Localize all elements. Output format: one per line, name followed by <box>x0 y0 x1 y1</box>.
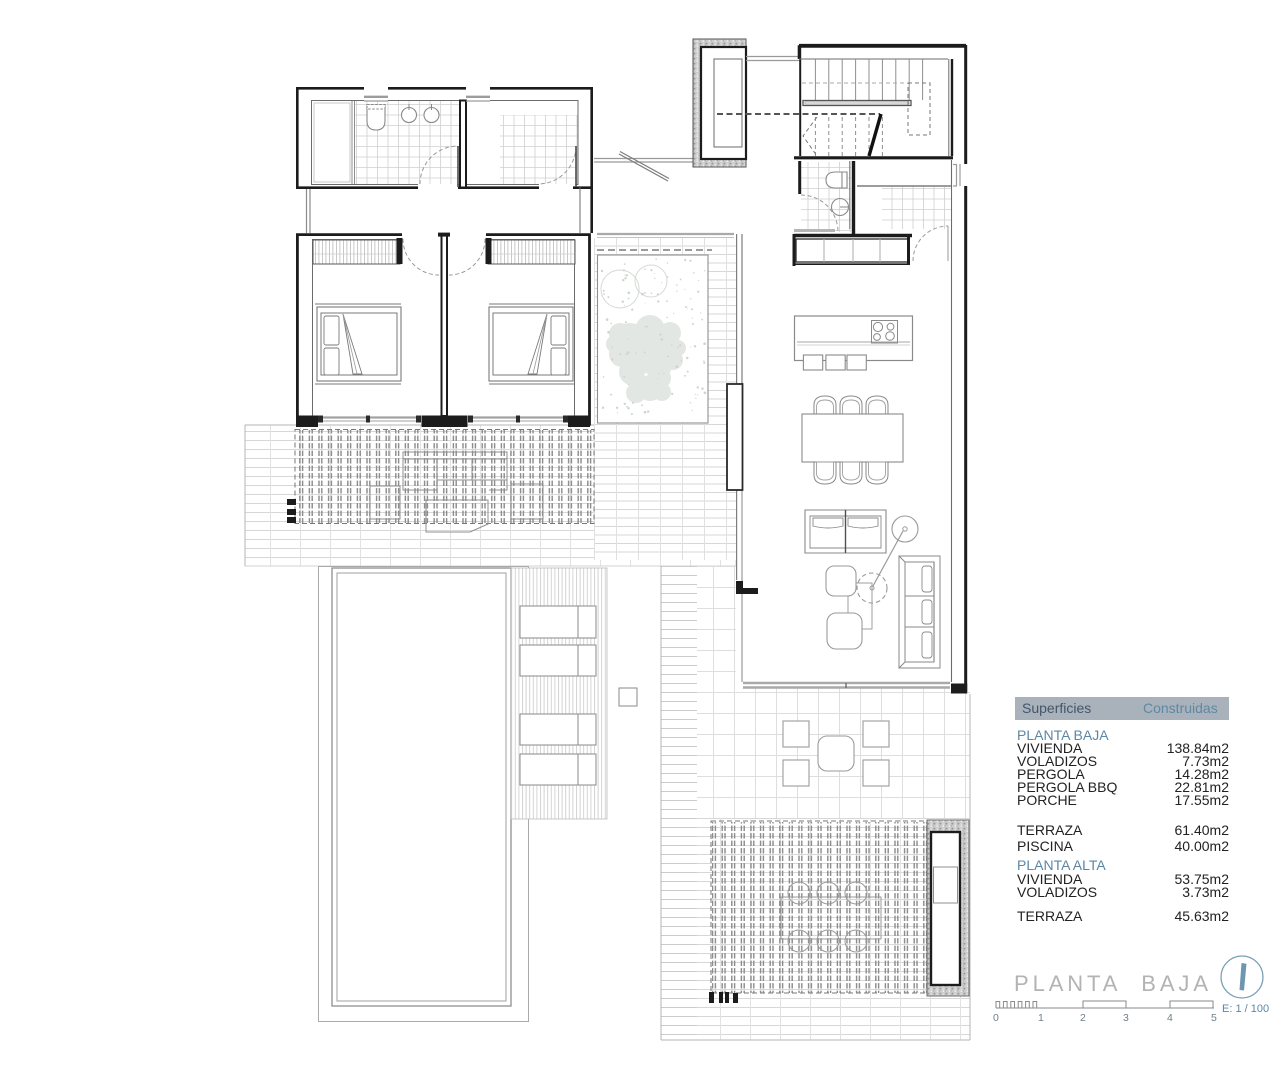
svg-text:1: 1 <box>1038 1012 1044 1024</box>
svg-text:61.40m2: 61.40m2 <box>1175 822 1230 838</box>
svg-text:5: 5 <box>1211 1012 1217 1024</box>
svg-text:E: 1 / 100: E: 1 / 100 <box>1222 1003 1269 1015</box>
svg-text:TERRAZA: TERRAZA <box>1017 908 1083 924</box>
svg-text:TERRAZA: TERRAZA <box>1017 822 1083 838</box>
svg-text:45.63m2: 45.63m2 <box>1175 908 1230 924</box>
svg-text:2: 2 <box>1080 1012 1086 1024</box>
svg-text:3.73m2: 3.73m2 <box>1182 884 1229 900</box>
svg-text:Construidas: Construidas <box>1143 700 1218 716</box>
svg-text:3: 3 <box>1123 1012 1129 1024</box>
svg-text:4: 4 <box>1167 1012 1173 1024</box>
svg-text:40.00m2: 40.00m2 <box>1175 838 1230 854</box>
svg-text:VOLADIZOS: VOLADIZOS <box>1017 884 1097 900</box>
svg-text:17.55m2: 17.55m2 <box>1175 792 1230 808</box>
svg-text:PORCHE: PORCHE <box>1017 792 1077 808</box>
svg-text:0: 0 <box>993 1012 999 1024</box>
svg-text:Superficies: Superficies <box>1022 700 1091 716</box>
svg-text:PISCINA: PISCINA <box>1017 838 1074 854</box>
svg-text:PLANTA BAJA: PLANTA BAJA <box>1014 971 1214 996</box>
